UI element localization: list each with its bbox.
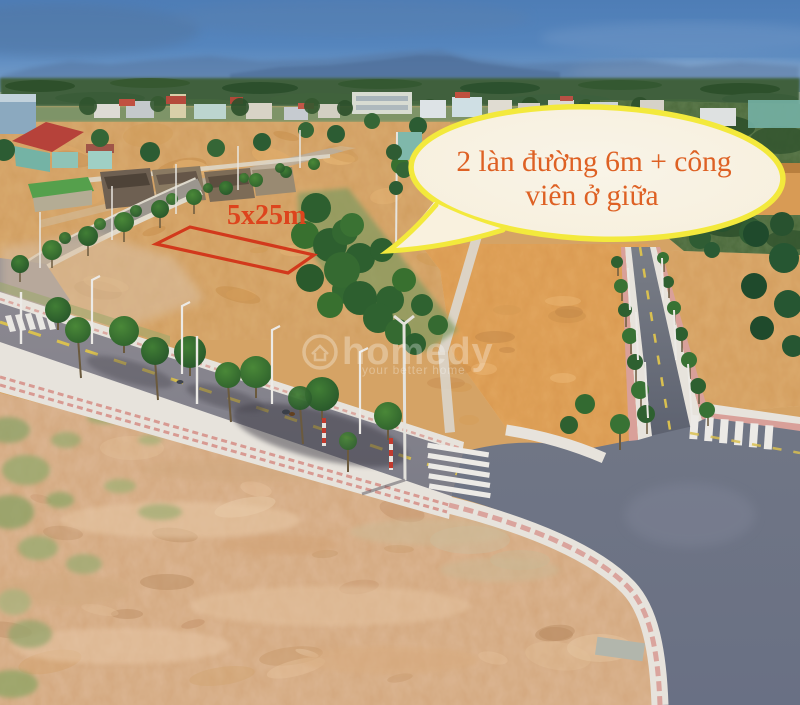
svg-text:viên ở giữa: viên ở giữa [525, 180, 658, 212]
svg-text:2 làn đường 6m + công: 2 làn đường 6m + công [456, 146, 731, 178]
svg-text:your better home: your better home [362, 363, 466, 377]
svg-text:5x25m: 5x25m [227, 200, 306, 231]
